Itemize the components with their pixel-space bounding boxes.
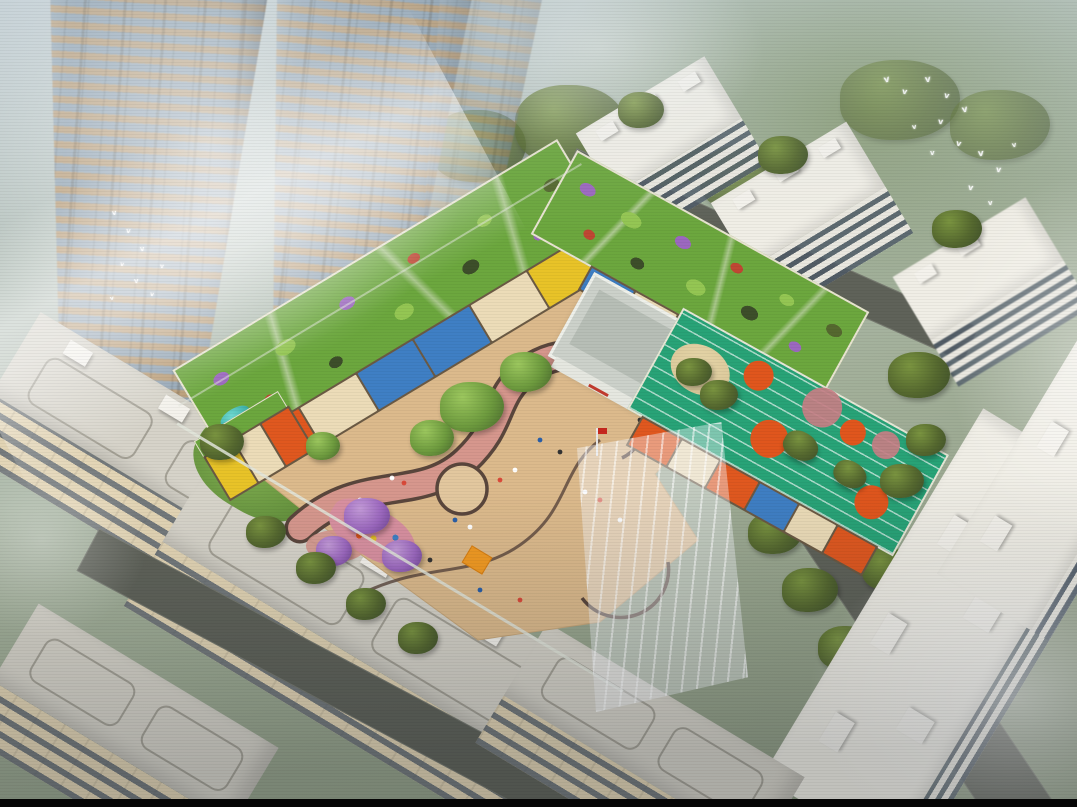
- bird-icon: v: [901, 88, 907, 97]
- roof-bulkhead: [732, 189, 755, 210]
- play-circle-orange: [835, 415, 870, 450]
- roof-marking: [653, 723, 768, 807]
- tree: [782, 568, 838, 612]
- bird-icon: v: [1011, 142, 1017, 150]
- roof-bulkhead: [914, 263, 937, 284]
- bird-icon: v: [134, 278, 139, 285]
- aerial-rendering-scene: v v v v v v v v v v v v v v v v v v v v …: [0, 0, 1077, 807]
- bird-icon: v: [967, 184, 973, 193]
- bird-icon: v: [996, 166, 1002, 175]
- bird-icon: v: [961, 106, 968, 116]
- roof-bulkhead: [158, 395, 190, 423]
- roof-bulkhead: [818, 712, 854, 752]
- bird-icon: v: [938, 118, 944, 126]
- bird-icon: v: [912, 124, 918, 132]
- roof-bulkhead: [678, 71, 701, 92]
- bird-icon: v: [112, 210, 118, 218]
- play-circle-orange: [738, 355, 779, 396]
- plaza-circle: [437, 464, 487, 514]
- roof-bulkhead: [870, 613, 907, 655]
- tree: [888, 352, 950, 398]
- red-flag: [598, 428, 607, 434]
- bird-icon: v: [925, 76, 932, 86]
- bird-icon: v: [150, 292, 155, 298]
- bird-icon: v: [126, 228, 131, 235]
- roof-bulkhead: [1036, 421, 1069, 457]
- play-circle-pink: [867, 426, 905, 464]
- roof-bulkhead: [595, 121, 618, 142]
- roof-bulkhead: [980, 515, 1013, 551]
- bird-icon: v: [930, 150, 935, 157]
- bird-icon: v: [160, 264, 164, 270]
- bird-icon: v: [988, 200, 993, 207]
- letterbox-bar-bottom: [0, 799, 1077, 807]
- roof-bulkhead: [818, 138, 841, 159]
- bird-icon: v: [110, 296, 115, 303]
- bird-icon: v: [140, 246, 145, 253]
- bird-icon: v: [978, 150, 985, 159]
- roof-bulkhead: [896, 707, 935, 745]
